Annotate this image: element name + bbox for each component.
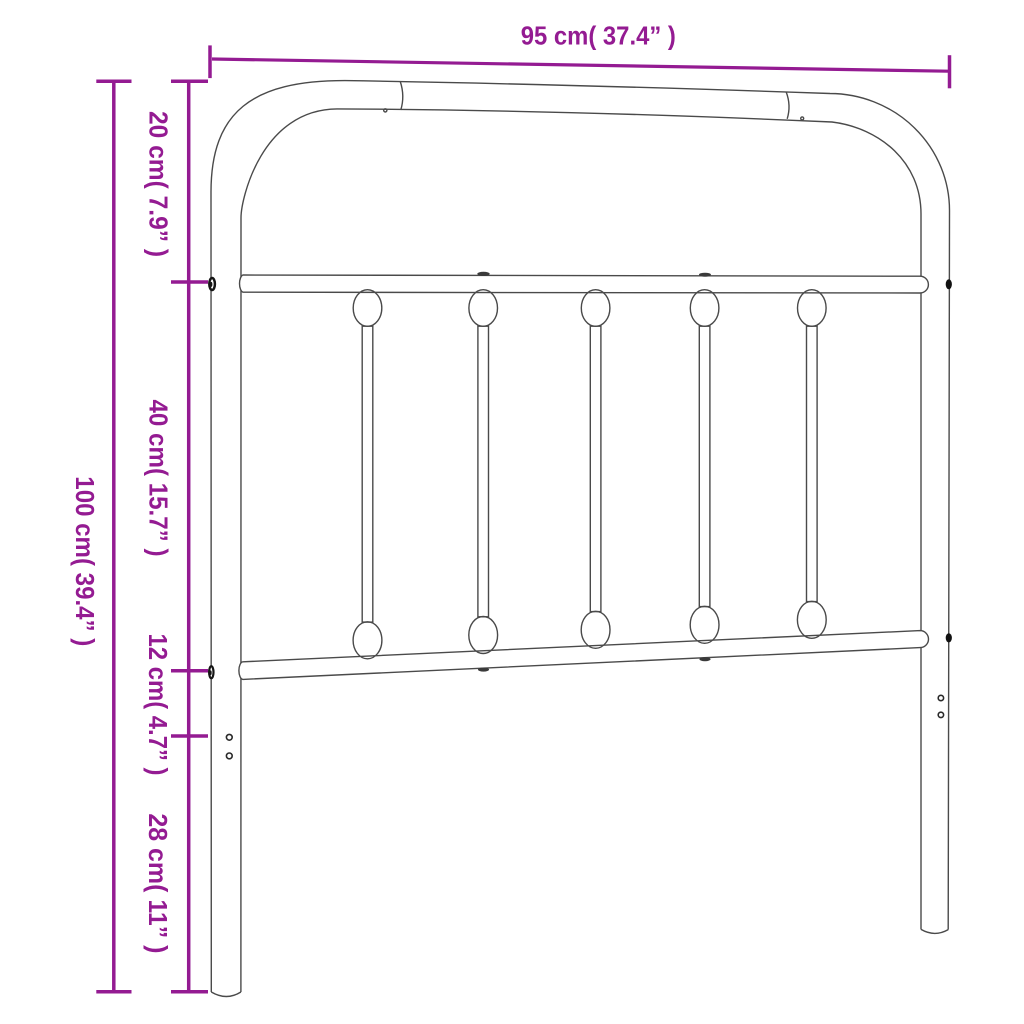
svg-text:12 cm( 4.7” ): 12 cm( 4.7” ) [143,634,173,776]
svg-text:100 cm( 39.4” ): 100 cm( 39.4” ) [70,476,100,646]
svg-text:95 cm( 37.4” ): 95 cm( 37.4” ) [521,20,676,50]
svg-text:28 cm( 11” ): 28 cm( 11” ) [143,813,173,953]
svg-text:40 cm( 15.7” ): 40 cm( 15.7” ) [144,400,174,557]
svg-text:20 cm( 7.9” ): 20 cm( 7.9” ) [144,111,174,257]
